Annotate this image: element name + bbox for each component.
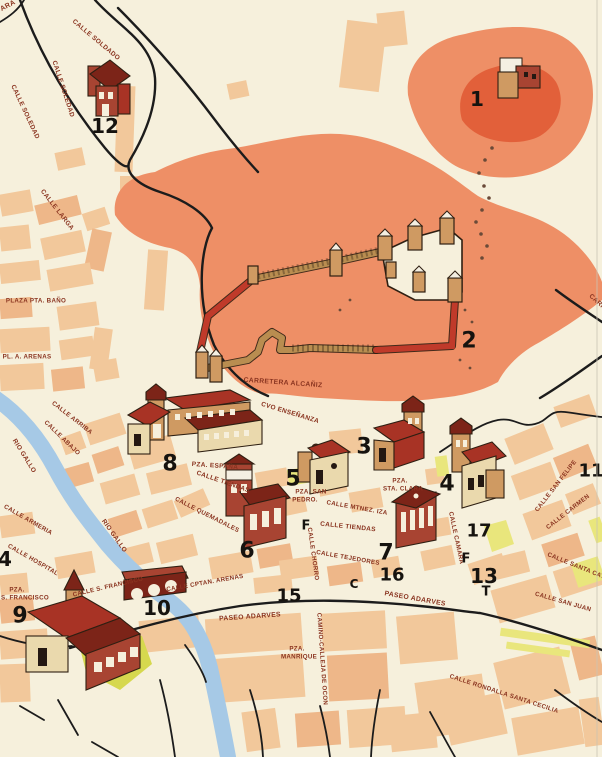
poi-number: 2	[461, 329, 476, 354]
building-3-church	[374, 396, 424, 470]
poi-number: 6	[239, 539, 254, 564]
street-label: CVO ENSEÑANZA	[260, 399, 320, 425]
poi-number: 5	[285, 467, 300, 492]
street-label: PZA.	[289, 646, 304, 653]
map-canvas: ARACALLE SOLDADOCALLE SOLEDADCALLE SOLED…	[0, 0, 602, 757]
town-map: ARACALLE SOLDADOCALLE SOLEDADCALLE SOLED…	[0, 0, 602, 757]
poi-number: 10	[143, 596, 171, 620]
poi-number: F	[462, 552, 471, 567]
building-8-convent	[128, 384, 262, 454]
poi-number: 9	[12, 604, 27, 629]
poi-number: 8	[162, 452, 177, 477]
street-label: PZA.	[392, 478, 407, 485]
building-5-church	[298, 440, 350, 494]
street-label: CALLE SOLEDAD	[51, 60, 76, 118]
poi-number: F	[302, 519, 311, 534]
street-label: PZA.	[9, 587, 24, 594]
poi-number: 7	[378, 541, 393, 566]
poi-number: C	[350, 577, 359, 591]
street-label: CALLE TIENDAS	[320, 521, 377, 534]
poi-number: 16	[379, 565, 404, 586]
building-12	[88, 60, 130, 116]
poi-number: 15	[276, 586, 301, 607]
poi-number: 4	[0, 547, 12, 571]
north-knoll	[408, 27, 593, 178]
poi-number: 1	[470, 87, 484, 111]
poi-number: 11	[578, 461, 602, 482]
poi-number: T	[482, 585, 491, 600]
poi-number: 12	[91, 114, 119, 138]
poi-number: 3	[356, 435, 371, 460]
poi-number: 4	[439, 472, 454, 497]
street-label: STA. CLARA	[383, 486, 423, 493]
street-label: CALLE SOLEDAD	[9, 84, 40, 141]
street-label: CALLE HOSPITAL	[6, 543, 59, 578]
street-label: PLAZA PTA. BAÑO	[6, 298, 66, 305]
street-label: CALLE SOLDADO	[71, 18, 121, 62]
street-label: S. FRANCISCO	[1, 595, 49, 602]
street-label: PEDRO.	[292, 497, 318, 504]
street-label: PL. A. ARENAS	[3, 354, 52, 361]
street-label: MANRIQUE	[281, 654, 317, 661]
building-4-church	[450, 418, 506, 508]
building-7-church	[392, 486, 440, 548]
poi-number: 17	[466, 521, 491, 542]
